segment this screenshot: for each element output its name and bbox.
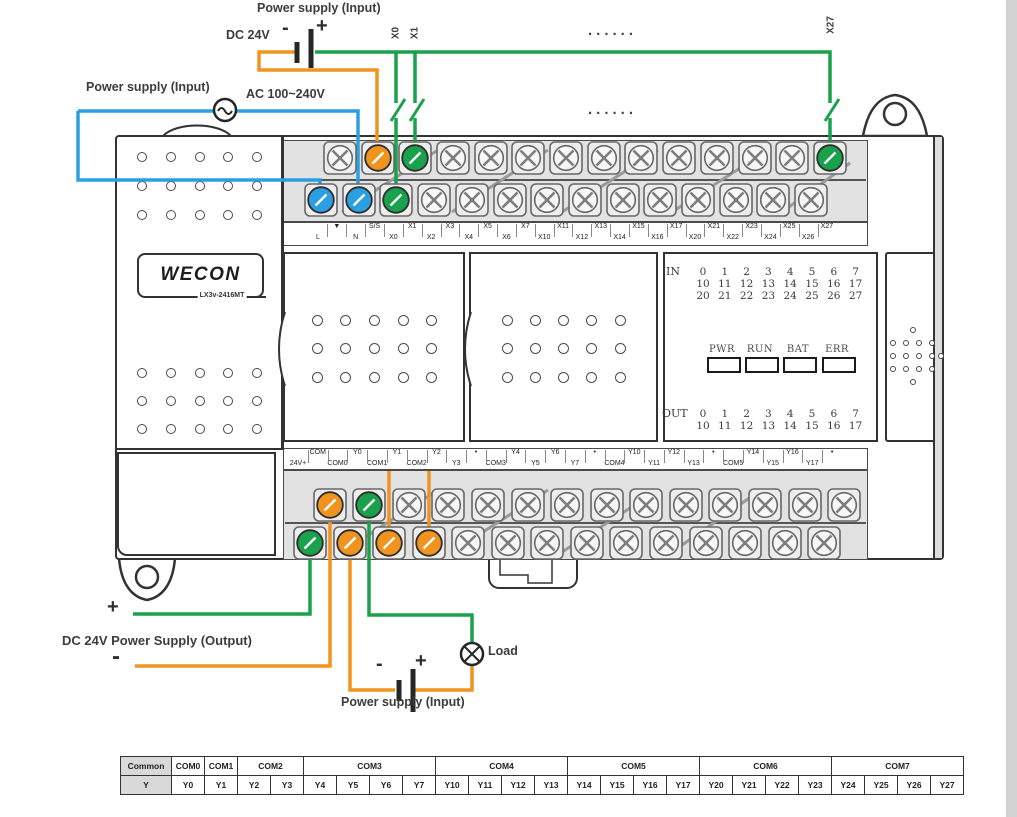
input-terminal-screw-X22	[719, 183, 753, 217]
input-terminal-label-X21: X21	[708, 223, 720, 230]
input-terminal-label-X4: X4	[465, 234, 474, 241]
output-terminal-screw-COM1	[372, 526, 406, 560]
output-terminal-label-COM0: COM0	[327, 460, 347, 467]
label-x27: X27	[826, 16, 837, 34]
input-terminal-screw-X10	[530, 183, 564, 217]
output-terminal-screw-Y7	[570, 526, 604, 560]
output-terminal-label-COM3: COM3	[486, 460, 506, 467]
output-terminal-label-Y0: Y0	[353, 449, 362, 456]
output-terminal-label-Y4: Y4	[511, 449, 520, 456]
label-power-supply-input-bottom: Power supply (Input)	[341, 695, 465, 709]
output-terminal-screw-COM0	[333, 526, 367, 560]
input-terminal-screw-X14	[606, 183, 640, 217]
input-terminal-label-X7: X7	[521, 223, 530, 230]
output-terminal-screw-•	[827, 488, 861, 522]
output-terminal-screw-•	[471, 488, 505, 522]
output-terminal-label-•: •	[475, 449, 477, 456]
input-terminal-screw-N	[342, 183, 376, 217]
label-x0: X0	[391, 27, 402, 39]
input-terminal-screw-L	[304, 183, 338, 217]
output-terminal-label-COM1: COM1	[367, 460, 387, 467]
load-lamp-symbol	[461, 643, 483, 665]
input-terminal-label-N: N	[353, 234, 358, 241]
output-minus-sign: -	[112, 645, 120, 669]
input-terminal-label-X25: X25	[783, 223, 795, 230]
input-terminal-label-X10: X10	[538, 234, 550, 241]
output-terminal-label-COM5: COM5	[723, 460, 743, 467]
input-terminal-label-▼: ▼	[333, 223, 340, 230]
input-terminal-label-X17: X17	[670, 223, 682, 230]
input-terminal-label-X14: X14	[613, 234, 625, 241]
output-terminal-screw-COM	[313, 488, 347, 522]
label-load: Load	[488, 644, 518, 658]
input-terminal-screw-S/S	[361, 141, 395, 175]
output-terminal-label-•: •	[593, 449, 595, 456]
input-terminal-screw-X1	[398, 141, 432, 175]
input-terminal-label-X12: X12	[576, 234, 588, 241]
supply-minus-sign: -	[376, 654, 383, 674]
input-terminal-label-X2: X2	[427, 234, 436, 241]
input-terminal-screw-X17	[662, 141, 696, 175]
input-terminal-label-X27: X27	[821, 223, 833, 230]
output-terminal-screw-•	[708, 488, 742, 522]
label-power-supply-input-top: Power supply (Input)	[257, 1, 381, 15]
input-terminal-label-L: L	[316, 234, 320, 241]
output-terminal-label-•: •	[712, 449, 714, 456]
output-terminal-label-Y16: Y16	[786, 449, 798, 456]
input-terminal-label-S/S: S/S	[369, 223, 380, 230]
input-terminal-screw-X24	[756, 183, 790, 217]
label-ac-voltage: AC 100~240V	[246, 87, 325, 101]
input-terminal-label-X15: X15	[632, 223, 644, 230]
input-terminal-screw-X3	[436, 141, 470, 175]
output-terminal-screw-Y15	[768, 526, 802, 560]
output-terminal-screw-Y2	[431, 488, 465, 522]
input-terminal-label-X6: X6	[502, 234, 511, 241]
dc24v-output-positive-wire	[133, 545, 310, 614]
input-terminal-label-X20: X20	[689, 234, 701, 241]
output-terminal-screw-Y3	[451, 526, 485, 560]
output-terminal-screw-Y4	[511, 488, 545, 522]
output-terminal-label-Y11: Y11	[648, 460, 660, 467]
dc24v-minus-sign: -	[282, 18, 289, 38]
input-terminal-label-X26: X26	[802, 234, 814, 241]
output-terminal-screw-•	[590, 488, 624, 522]
output-terminal-label-COM2: COM2	[407, 460, 427, 467]
output-terminal-label-Y6: Y6	[551, 449, 560, 456]
input-terminal-screw-X6	[493, 183, 527, 217]
input-terminal-label-X3: X3	[446, 223, 455, 230]
input-terminal-screw-X4	[455, 183, 489, 217]
input-terminal-screw-X16	[643, 183, 677, 217]
output-terminal-screw-COM4	[609, 526, 643, 560]
input-terminal-label-X23: X23	[745, 223, 757, 230]
input-terminal-screw-X7	[511, 141, 545, 175]
input-terminal-screw-X27	[813, 141, 847, 175]
dc24v-plus-sign: +	[316, 16, 328, 36]
input-terminal-label-X22: X22	[726, 234, 738, 241]
output-terminal-screw-Y11	[649, 526, 683, 560]
module-clips	[279, 312, 471, 386]
label-x1: X1	[410, 27, 421, 39]
output-terminal-label-Y7: Y7	[571, 460, 580, 467]
output-terminal-screw-Y16	[788, 488, 822, 522]
input-terminal-screw-X0	[379, 183, 413, 217]
dc24v-battery-symbol	[297, 29, 311, 68]
output-terminal-label-Y14: Y14	[747, 449, 759, 456]
output-terminal-screw-Y14	[748, 488, 782, 522]
output-terminal-label-Y10: Y10	[628, 449, 640, 456]
input-terminal-label-X0: X0	[389, 234, 398, 241]
output-terminal-screw-Y1	[392, 488, 426, 522]
output-terminal-label-Y2: Y2	[432, 449, 441, 456]
dc24v-positive-wires	[315, 52, 839, 198]
ac-source-symbol	[214, 99, 236, 121]
input-terminal-screw-X23	[738, 141, 772, 175]
input-terminal-screw-X26	[794, 183, 828, 217]
output-terminal-screw-COM2	[412, 526, 446, 560]
output-terminal-screw-Y12	[669, 488, 703, 522]
output-terminal-screw-Y5	[530, 526, 564, 560]
input-terminal-screw-X11	[549, 141, 583, 175]
label-dc24v-output: DC 24V Power Supply (Output)	[62, 633, 252, 648]
label-dc24v: DC 24V	[226, 28, 270, 42]
input-terminal-screw-X21	[700, 141, 734, 175]
output-terminal-label-COM4: COM4	[604, 460, 624, 467]
input-terminal-label-X1: X1	[408, 223, 417, 230]
input-terminal-screw-X25	[775, 141, 809, 175]
input-terminal-label-X11: X11	[557, 223, 569, 230]
output-terminal-label-Y1: Y1	[393, 449, 402, 456]
supply-plus-sign: +	[415, 651, 427, 671]
input-terminal-screw-X13	[587, 141, 621, 175]
output-terminal-screw-Y17	[807, 526, 841, 560]
output-terminal-label-•: •	[831, 449, 833, 456]
input-terminal-label-X13: X13	[595, 223, 607, 230]
input-terminal-screw-X2	[417, 183, 451, 217]
output-terminal-label-24V+: 24V+	[290, 460, 307, 467]
input-terminal-screw-X20	[681, 183, 715, 217]
output-terminal-screw-Y6	[550, 488, 584, 522]
input-terminal-screw-X5	[474, 141, 508, 175]
plc-wiring-diagram: WECON LX3v-2416MT	[0, 0, 1017, 817]
output-terminal-screw-COM3	[491, 526, 525, 560]
input-terminal-label-X16: X16	[651, 234, 663, 241]
input-terminal-screw-X12	[568, 183, 602, 217]
input-terminal-screw-X15	[624, 141, 658, 175]
input-terminal-label-X24: X24	[764, 234, 776, 241]
output-terminal-screw-Y0	[352, 488, 386, 522]
input-terminal-label-X5: X5	[483, 223, 492, 230]
ellipsis-top: ......	[588, 22, 637, 39]
output-terminal-label-COM: COM	[310, 449, 326, 456]
ellipsis-mid: ......	[588, 101, 637, 118]
output-terminal-screw-24V+	[293, 526, 327, 560]
output-terminal-label-Y17: Y17	[806, 460, 818, 467]
output-terminal-screw-Y10	[629, 488, 663, 522]
output-plus-sign: +	[107, 597, 119, 617]
label-power-supply-input-left: Power supply (Input)	[86, 80, 210, 94]
output-terminal-screw-Y13	[689, 526, 723, 560]
output-terminal-label-Y13: Y13	[687, 460, 699, 467]
output-terminal-label-Y12: Y12	[668, 449, 680, 456]
output-terminal-screw-COM5	[728, 526, 762, 560]
output-terminal-label-Y5: Y5	[531, 460, 540, 467]
input-terminal-screw-▼	[323, 141, 357, 175]
output-terminal-label-Y3: Y3	[452, 460, 461, 467]
output-terminal-label-Y15: Y15	[766, 460, 778, 467]
